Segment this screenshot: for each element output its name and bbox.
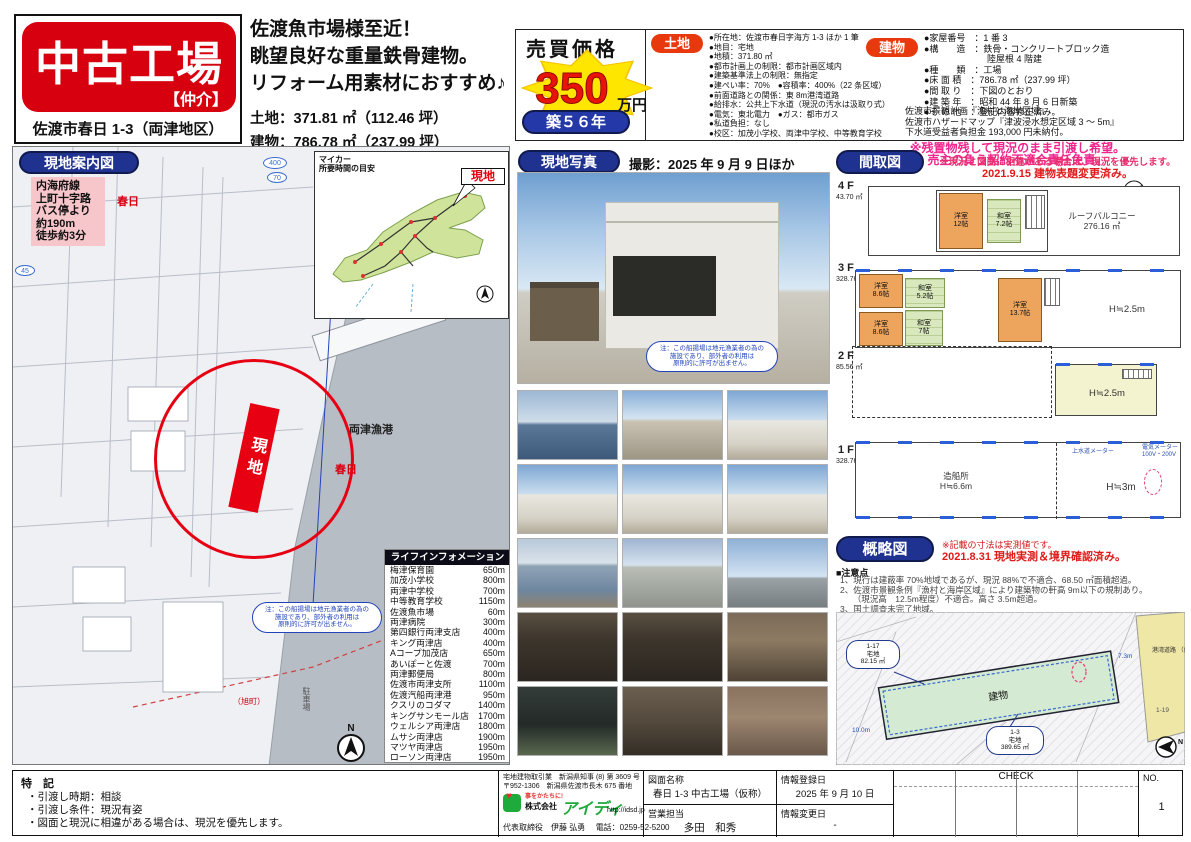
lifeline-row: 加茂小学校800m [385, 575, 510, 585]
lifeline-place: 両津中学校 [390, 586, 434, 596]
photos-panel: 現地写真 撮影：2025 年 9 月 9 日ほか 注：この船揚場は地元漁業者の為… [515, 146, 833, 765]
floor1-window-marks-bottom [856, 516, 1182, 519]
footer-zumen-cell: 図面名称 春日 1-3 中古工場（仮称） 営業担当 多田 和秀 [643, 771, 776, 837]
floorplan-panel: 間取図 ※現況と図面に相違がある場合は、現況を優先します。 2021.9.15 … [836, 146, 1185, 765]
photo-slipway-2 [622, 390, 723, 460]
lifeline-place: 両津郵便局 [390, 669, 434, 679]
land-detail-item: ●都市計画上の制限：都市計画区域内 [709, 62, 881, 72]
sketch-dim-1: 7.3m [1118, 653, 1132, 660]
reg-date-label: 情報登録日 [777, 771, 893, 786]
catch-line-2: 眺望良好な重量鉄骨建物。 [250, 43, 518, 70]
photo-town-8 [622, 538, 723, 608]
lifeline-distance: 1900m [478, 732, 505, 742]
land-detail-item: ●給排水：公共上下水道（現況の汚水は汲取り式） [709, 100, 881, 110]
building-detail-item: ●種 類 ：工場 [924, 65, 1182, 76]
floor2-stairs [1122, 369, 1152, 379]
page-title: 中古工場 [22, 28, 236, 94]
floor4-room2: 和室 7.2帖 [987, 199, 1021, 243]
photo-exterior-3 [727, 390, 828, 460]
lifeline-distance: 700m [483, 586, 505, 596]
lifeline-place: 佐渡魚市場 [390, 607, 434, 617]
lifeline-distance: 800m [483, 575, 505, 585]
photo-workshop-11 [622, 612, 723, 682]
asahimachi-label: （旭町） [233, 696, 265, 707]
lifeline-place: 加茂小学校 [390, 575, 434, 585]
floor4-area: 43.70 ㎡ [836, 192, 862, 202]
sketch-caution-list: 1、現行は建蔽率 70%地域であるが、現況 88%で不適合、68.50 ㎡面積超… [840, 576, 1185, 614]
photo-corridor-14 [622, 686, 723, 756]
lifeline-row: 両津中学校700m [385, 586, 510, 596]
lifeline-row: 佐渡市両津支所1100m [385, 679, 510, 689]
building-detail-item: ●家屋番号 ：1 番 3 [924, 33, 1182, 44]
floor4-stairs [1025, 195, 1045, 229]
floor3-name: 3 F [838, 262, 854, 274]
photo-main-exterior: 注：この船揚場は地元漁業者の為の 施設であり、部外者の利用は 原則的に許可が出ま… [517, 172, 830, 384]
photo-building-shape [605, 202, 779, 349]
tokki-item: ・引渡し時期：相談 [27, 791, 498, 804]
lifeline-row: ムサシ両津店1900m [385, 732, 510, 742]
footer-company-cell: 宅地建物取引業 新潟県知事 (8) 第 3609 号 〒952-1306 新潟県… [498, 771, 643, 837]
boat-ramp-note: 注：この船揚場は地元漁業者の為の 施設であり、部外者の利用は 原則的に許可が出ま… [252, 602, 382, 633]
zumen-label: 図面名称 [644, 771, 776, 786]
floor3-room2: 和室 5.2帖 [905, 278, 945, 308]
company-prefix: 株式会社 [525, 801, 557, 812]
floor3-stairs [1044, 278, 1060, 306]
land-detail-item: ●電気：東北電力 ●ガス：都市ガス [709, 110, 881, 120]
lifeline-row: 梅津保育園650m [385, 565, 510, 575]
sketch-dim-2: 10.0m [852, 727, 870, 734]
photo-interior-12 [727, 612, 828, 682]
floor1-meter1-label: 上水道メーター [1072, 449, 1114, 456]
land-detail-item: ●建ぺい率：70% ●容積率：400%（22 条区域） [709, 81, 881, 91]
broker-label: 【仲介】 [164, 86, 228, 110]
floor2-window-marks [1056, 363, 1158, 366]
lifeline-place: 中等教育学校 [390, 596, 443, 606]
lifeline-row: ウェルシア両津店1800m [385, 721, 510, 731]
building-detail-item: ●床 面 積 ：786.78 ㎡（237.99 坪） [924, 75, 1182, 86]
company-url: http://idsd.jp [607, 807, 645, 814]
madori-section-header: 間取図 [836, 150, 924, 174]
lifeline-place: ローソン両津店 [390, 752, 452, 762]
lifeline-distance: 400m [483, 638, 505, 648]
lifeline-place: 佐渡市両津支所 [390, 679, 452, 689]
map-compass-icon: N [331, 721, 371, 765]
zumen-value: 春日 1-3 中古工場（仮称） [644, 786, 776, 800]
map-section-header: 現地案内図 [19, 151, 139, 174]
lifeline-row: 第四銀行両津支店400m [385, 627, 510, 637]
catch-line-1: 佐渡魚市場様至近！ [250, 16, 518, 43]
check-divider-1 [955, 771, 956, 837]
lifeline-distance: 1800m [478, 721, 505, 731]
building-detail-item: ●構 造 ：鉄骨・コンクリートブロック造 陸屋根 4 階建 [924, 44, 1182, 65]
lifeline-info-box: ライフインフォメーション 梅津保育園650m加茂小学校800m両津中学校700m… [384, 549, 510, 763]
title-box: 中古工場 【仲介】 佐渡市春日 1-3（両津地区） [14, 14, 242, 144]
chg-date-value: - [777, 820, 893, 831]
no-label: NO. [1139, 771, 1184, 783]
building-section-label: 建物 [866, 38, 918, 57]
photo-living-15 [727, 686, 828, 756]
no-value: 1 [1139, 801, 1184, 813]
parking-label: 駐車場 [301, 687, 312, 711]
lifeline-row: マツヤ両津店1950m [385, 742, 510, 752]
lifeline-distance: 700m [483, 659, 505, 669]
company-license: 宅地建物取引業 新潟県知事 (8) 第 3609 号 [503, 774, 639, 783]
lifeline-distance: 650m [483, 648, 505, 658]
land-detail-item: ●地積：371.80 ㎡ [709, 52, 881, 62]
photo-boat-note: 注：この船揚場は地元漁業者の為の 施設であり、部外者の利用は 原則的に許可が出ま… [646, 341, 778, 372]
photo-harbor-1 [517, 390, 618, 460]
floor1-meter2-label: 電気メーター 100V・200V [1142, 445, 1178, 458]
floor2-void [852, 346, 1052, 418]
reg-date-value: 2025 年 9 月 10 日 [777, 786, 893, 800]
building-extra-item: 佐渡市ハザードマップ『津波浸水想定区域 3 ～ 5m』 [905, 117, 1183, 128]
floor3-room4: 和室 7帖 [905, 310, 943, 346]
lifeline-row: キング両津店400m [385, 638, 510, 648]
island-graphic [315, 166, 508, 316]
lifeline-distance: 1150m [479, 596, 505, 606]
catch-copy: 佐渡魚市場様至近！ 眺望良好な重量鉄骨建物。 リフォーム用素材におすすめ♪ 土地… [250, 16, 518, 152]
land-details-list: ●所在地：佐渡市春日字海方 1-3 ほか 1 筆●地目：宅地●地積：371.80… [709, 33, 881, 139]
tokki-list: ・引渡し時期：相談・引渡し条件：現況有姿・図面と現況に相違がある場合は、現況を優… [13, 791, 498, 830]
photo-shed-shape [530, 282, 598, 341]
company-logo-heart: ♥ [506, 791, 512, 802]
route-marker-45: 45 [15, 265, 35, 276]
lifeline-title: ライフインフォメーション [385, 550, 510, 565]
floor4-name: 4 F [838, 180, 854, 192]
lifeline-place: 佐渡汽船両津港 [390, 690, 452, 700]
floor2-room: H≒2.5m [1055, 364, 1157, 416]
lifeline-row: Aコープ加茂店650m [385, 648, 510, 658]
price-value: 350 [535, 64, 608, 113]
tokki-item: ・引渡し条件：現況有姿 [27, 804, 498, 817]
property-address: 佐渡市春日 1-3（両津地区） [16, 118, 240, 139]
lifeline-row: 佐渡魚市場60m [385, 607, 510, 617]
floor4-room1: 洋室 12帖 [939, 193, 983, 249]
lifeline-distance: 300m [483, 617, 505, 627]
land-detail-item: ●所在地：佐渡市春日字海方 1-3 ほか 1 筆 [709, 33, 881, 43]
lifeline-row: キングサンモール店1700m [385, 711, 510, 721]
lifeline-place: キングサンモール店 [390, 711, 469, 721]
chg-date-label: 情報変更日 [777, 805, 893, 820]
lifeline-distance: 1100m [479, 679, 505, 689]
building-extra-list: 佐渡市景観計画『漁村と海岸区域』佐渡市ハザードマップ『津波浸水想定区域 3 ～ … [905, 106, 1183, 138]
lifeline-place: クスリのコダマ [390, 700, 451, 710]
photo-exterior-5 [622, 464, 723, 534]
sales-value: 多田 和秀 [644, 820, 776, 835]
footer: 特 記 ・引渡し時期：相談・引渡し条件：現況有姿・図面と現況に相違がある場合は、… [12, 770, 1183, 836]
lifeline-place: キング両津店 [390, 638, 443, 648]
floor3-room5: 洋室 13.7帖 [998, 278, 1042, 342]
photo-exterior-4 [517, 464, 618, 534]
floor2-height: H≒2.5m [1072, 389, 1142, 399]
lifeline-distance: 650m [483, 565, 505, 575]
floor1-label: 造船所 H≒6.6m [911, 471, 1001, 491]
floor1-divider [1056, 443, 1057, 519]
footer-tokki-cell: 特 記 ・引渡し時期：相談・引渡し条件：現況有姿・図面と現況に相違がある場合は、… [13, 771, 498, 837]
building-extra-item: 下水道受益者負担金 193,000 円未納付。 [905, 127, 1183, 138]
sketch-road-parcel: 1-19 [1156, 707, 1169, 714]
lifeline-row: 中等教育学校1150m [385, 596, 510, 606]
footer-check-cell: CHECK [893, 771, 1138, 837]
land-section-label: 土地 [651, 34, 703, 53]
floor3-window-marks [856, 269, 1182, 272]
floor3-room3: 洋室 8.6帖 [859, 312, 903, 346]
tokki-item: ・図面と現況に相違がある場合は、現況を優先します。 [27, 817, 498, 830]
check-divider-3 [1077, 771, 1078, 837]
land-detail-item: ●地目：宅地 [709, 43, 881, 53]
lifeline-distance: 800m [483, 669, 505, 679]
lifeline-place: ウェルシア両津店 [390, 721, 460, 731]
lifeline-distance: 1950m [478, 742, 505, 752]
photo-aerial-7 [517, 538, 618, 608]
sketch-note-2: 2021.8.31 現地実測＆境界確認済み。 [942, 548, 1126, 564]
photo-awning-shape [613, 256, 716, 317]
inset-drive-map: マイカー 所要時間の目安 [314, 151, 509, 319]
map-panel: 現地案内図 内海府線 上町十字路 バス停より 約190m 徒歩約3分 400 7… [12, 146, 510, 765]
footer-no-cell: NO. 1 [1138, 771, 1184, 837]
company-rep: 代表取締役 伊藤 弘勇 [503, 823, 585, 832]
lifeline-place: ムサシ両津店 [390, 732, 443, 742]
lifeline-distance: 60m [488, 607, 505, 617]
photo-workshop-10 [517, 612, 618, 682]
floor4-plan: 洋室 12帖 和室 7.2帖 [936, 190, 1048, 252]
lifeline-place: マツヤ両津店 [390, 742, 443, 752]
age-badge: 築５６年 [522, 110, 630, 134]
floor3-room1: 洋室 8.6帖 [859, 274, 903, 308]
building-detail-item: ●間 取 り ：下図のとおり [924, 86, 1182, 97]
sketch-parcel-1: 1-17 宅地 82.15 ㎡ [846, 640, 900, 669]
lifeline-row: ローソン両津店1950m [385, 752, 510, 762]
floor1-window-marks-top [856, 441, 1182, 444]
lifeline-list: 梅津保育園650m加茂小学校800m両津中学校700m中等教育学校1150m佐渡… [385, 565, 510, 763]
photos-section-header: 現地写真 [518, 150, 620, 173]
floor1-red-oval [1144, 469, 1162, 495]
check-divider-2 [1016, 771, 1017, 837]
photo-balcony-line [606, 221, 778, 223]
lifeline-place: 両津病院 [390, 617, 425, 627]
floor1-plan: 造船所 H≒6.6m H≒3m 上水道メーター 電気メーター 100V・200V [855, 442, 1181, 518]
company-tagline: 事をかたちに! [525, 791, 563, 800]
lifeline-place: 梅津保育園 [390, 565, 434, 575]
title-red-banner: 中古工場 【仲介】 [22, 22, 236, 112]
lifeline-row: 両津病院300m [385, 617, 510, 627]
flyer-page: 中古工場 【仲介】 佐渡市春日 1-3（両津地区） 佐渡魚市場様至近！ 眺望良好… [0, 0, 1191, 842]
lifeline-row: 佐渡汽船両津港950m [385, 690, 510, 700]
svg-text:N: N [347, 723, 354, 734]
lifeline-row: 両津郵便局800m [385, 669, 510, 679]
site-label: 現地 [238, 434, 271, 482]
floor3-plan: 洋室 8.6帖 和室 5.2帖 洋室 8.6帖 和室 7帖 洋室 13.7帖 H… [855, 270, 1181, 348]
sketch-section-header: 概略図 [836, 536, 934, 562]
sketch-parcel-2: 1-3 宅地 389.65 ㎡ [986, 726, 1044, 755]
tokki-title: 特 記 [13, 771, 498, 791]
company-address: 〒952-1306 新潟県佐渡市長木 675 番地 [503, 783, 639, 792]
sketch-road-label-part: 港湾道路 （県管理） 幅員約8m [1152, 646, 1185, 654]
sales-label: 営業担当 [644, 805, 776, 820]
bus-access-note: 内海府線 上町十字路 バス停より 約190m 徒歩約3分 [31, 177, 105, 246]
lifeline-place: Aコープ加茂店 [390, 648, 448, 658]
port-label: 両津漁港 [349, 421, 393, 437]
lifeline-distance: 400m [483, 627, 505, 637]
photo-shot-date: 撮影：2025 年 9 月 9 日ほか [629, 154, 794, 173]
route-marker-70: 70 [267, 172, 287, 183]
photo-exterior-6 [727, 464, 828, 534]
floor1-name: 1 F [838, 444, 854, 456]
floor4-balcony-label: ルーフバルコニー 276.16 ㎡ [1047, 211, 1157, 231]
photo-rooftop-9 [727, 538, 828, 608]
lifeline-place: 第四銀行両津支店 [390, 627, 460, 637]
land-detail-item: ●建築基準法上の制限：無指定 [709, 71, 881, 81]
sketch-compass: N [1178, 739, 1183, 746]
catch-line-3: リフォーム用素材におすすめ♪ [250, 70, 518, 97]
kasuga-label-1: 春日 [117, 193, 139, 209]
lifeline-distance: 1950m [478, 752, 505, 762]
inset-site-label: 現地 [461, 168, 505, 185]
photo-bathroom-13 [517, 686, 618, 756]
lifeline-distance: 1700m [478, 711, 505, 721]
lifeline-place: あいぽーと佐渡 [390, 659, 452, 669]
route-marker-400: 400 [263, 157, 287, 169]
floor3-height: H≒2.5m [1092, 305, 1162, 315]
building-extra-item: 佐渡市景観計画『漁村と海岸区域』 [905, 106, 1183, 117]
lifeline-distance: 950m [483, 690, 505, 700]
lifeline-row: クスリのコダマ1400m [385, 700, 510, 710]
land-detail-item: ●私道負担：なし [709, 119, 881, 129]
lifeline-distance: 1400m [478, 700, 505, 710]
land-size-line: 土地：371.81 ㎡（112.46 坪） [250, 107, 518, 128]
company-logo: ♥ [503, 794, 521, 812]
land-detail-item: ●校区：加茂小学校、両津中学校、中等教育学校 [709, 129, 881, 139]
lifeline-row: あいぽーと佐渡700m [385, 659, 510, 669]
footer-dates-cell: 情報登録日 2025 年 9 月 10 日 情報変更日 - [776, 771, 893, 837]
land-detail-item: ●前面道路との関係：東 8m港湾道路 [709, 91, 881, 101]
